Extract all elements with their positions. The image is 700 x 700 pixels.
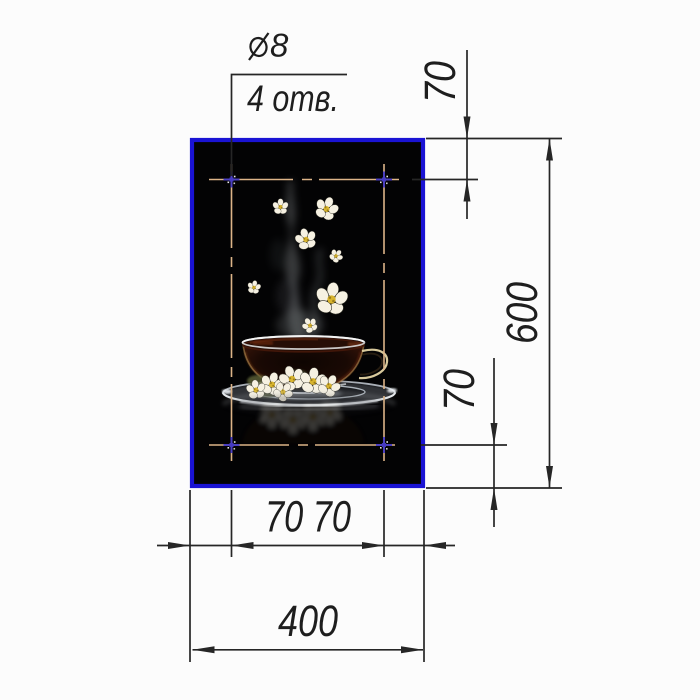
svg-text:8: 8 [270, 27, 289, 64]
svg-text:4 отв.: 4 отв. [247, 78, 339, 119]
svg-text:70: 70 [416, 61, 465, 103]
svg-text:400: 400 [278, 597, 338, 646]
svg-text:600: 600 [498, 282, 547, 344]
svg-text:70 70: 70 70 [265, 493, 351, 542]
svg-text:70: 70 [435, 369, 484, 411]
